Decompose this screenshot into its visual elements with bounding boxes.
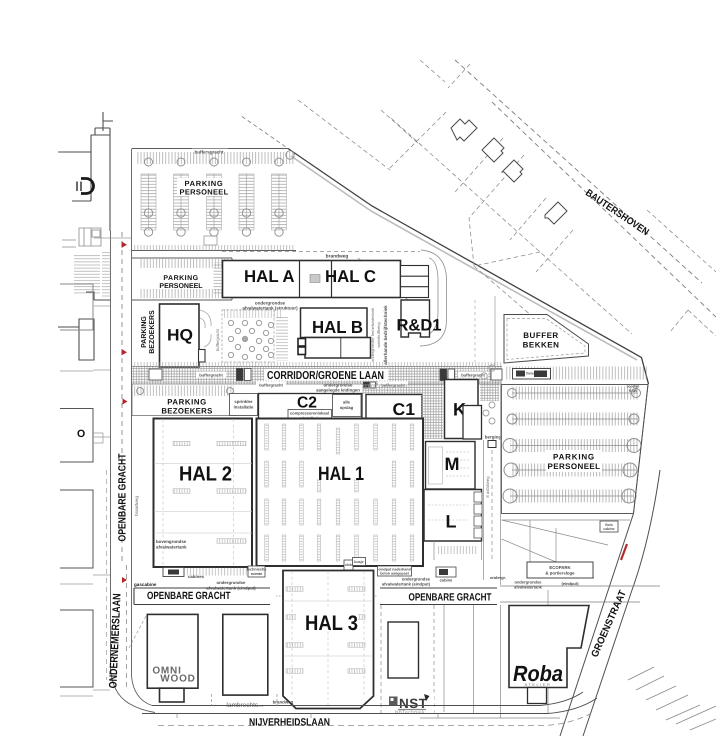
svg-text:OPENBARE GRACHT: OPENBARE GRACHT [147, 590, 231, 602]
svg-text:brandweg: brandweg [134, 496, 139, 516]
svg-text:elek: elek [345, 563, 352, 567]
svg-text:afvalwatertank: afvalwatertank [156, 545, 187, 550]
svg-text:R&D1: R&D1 [397, 317, 442, 335]
svg-text:BEKKEN: BEKKEN [523, 341, 560, 350]
svg-text:beton aangepast: beton aangepast [380, 572, 409, 576]
svg-text:cabine: cabine [440, 578, 453, 583]
svg-text:(eindput): (eindput) [561, 581, 579, 586]
svg-text:PARKING: PARKING [553, 453, 595, 462]
svg-text:HAL C: HAL C [325, 267, 376, 286]
svg-text:berging: berging [485, 435, 502, 440]
svg-text:ondergr.: ondergr. [490, 575, 506, 580]
svg-text:O: O [77, 428, 85, 440]
svg-text:busje: busje [354, 560, 363, 564]
svg-text:brandweg: brandweg [326, 254, 349, 260]
svg-text:HAL 3: HAL 3 [305, 612, 358, 635]
svg-text:afvalwatertank (struktuur): afvalwatertank (struktuur) [242, 306, 298, 311]
svg-text:cabine: cabine [603, 527, 614, 531]
svg-text:HAL 1: HAL 1 [318, 463, 364, 485]
svg-text:CORRIDOR/GROENE LAAN: CORRIDOR/GROENE LAAN [267, 370, 384, 382]
svg-text:BEZOEKERS: BEZOEKERS [149, 310, 156, 354]
svg-text:buffergracht: buffergracht [199, 373, 223, 378]
svg-text:fiets: fiets [526, 372, 533, 376]
svg-text:afvalwatertank (eindput): afvalwatertank (eindput) [382, 582, 431, 587]
svg-text:& portiersloge: & portiersloge [545, 571, 575, 576]
svg-text:aangelegde leidingen: aangelegde leidingen [316, 388, 360, 393]
svg-text:M: M [445, 454, 460, 474]
svg-text:ATELIER: ATELIER [525, 682, 552, 687]
svg-text:buffergracht: buffergracht [259, 383, 283, 388]
svg-text:gascabine: gascabine [134, 582, 157, 587]
svg-text:C2: C2 [297, 395, 317, 412]
svg-text:alle: alle [343, 400, 351, 405]
svg-text:ECOPARK: ECOPARK [549, 565, 571, 570]
svg-text:PERSONEEL: PERSONEEL [159, 283, 203, 290]
svg-text:ruimte: ruimte [251, 572, 263, 576]
svg-text:ondergrondse hemelwatertank: ondergrondse hemelwatertank [370, 308, 375, 362]
svg-text:buffergracht: buffergracht [215, 328, 220, 351]
svg-text:8 asfaltweg: 8 asfaltweg [485, 476, 490, 498]
svg-text:bovengrondse: bovengrondse [156, 539, 187, 544]
svg-text:HAL B: HAL B [312, 317, 363, 337]
svg-text:HAL A: HAL A [244, 267, 295, 286]
svg-text:PERSONEEL: PERSONEEL [548, 462, 601, 471]
svg-text:afvalwatertank: afvalwatertank [514, 585, 543, 590]
svg-text:afvalwatertank (eindput): afvalwatertank (eindput) [206, 586, 256, 591]
svg-text:HQ: HQ [167, 327, 193, 345]
svg-text:OPENBARE GRACHT: OPENBARE GRACHT [409, 592, 492, 604]
svg-text:ondergrondse: ondergrondse [217, 580, 246, 585]
svg-text:NIJVERHEIDSLAAN: NIJVERHEIDSLAAN [249, 717, 330, 729]
svg-text:installatie: installatie [234, 405, 254, 410]
svg-text:waterbuffering: waterbuffering [376, 322, 381, 347]
svg-text:technische: technische [247, 568, 267, 572]
svg-text:OPENBARE GRACHT: OPENBARE GRACHT [117, 453, 129, 541]
svg-text:allerhande bedrijfstechniek: allerhande bedrijfstechniek [383, 305, 388, 365]
svg-text:sprinkler: sprinkler [234, 399, 252, 404]
svg-text:PARKING: PARKING [163, 275, 198, 282]
svg-text:BEZOEKERS: BEZOEKERS [161, 407, 212, 416]
svg-text:PARKING: PARKING [141, 316, 148, 348]
svg-text:C1: C1 [393, 400, 416, 419]
svg-text:L: L [446, 512, 457, 532]
svg-text:brandweg: brandweg [273, 700, 294, 705]
svg-text:BUFFER: BUFFER [523, 331, 558, 340]
svg-text:WOOD: WOOD [160, 674, 195, 685]
svg-text:opslag: opslag [340, 405, 354, 410]
svg-text:HAL 2: HAL 2 [179, 463, 232, 486]
svg-text:PERSONEEL: PERSONEEL [180, 188, 229, 197]
svg-text:PARKING: PARKING [167, 398, 207, 407]
